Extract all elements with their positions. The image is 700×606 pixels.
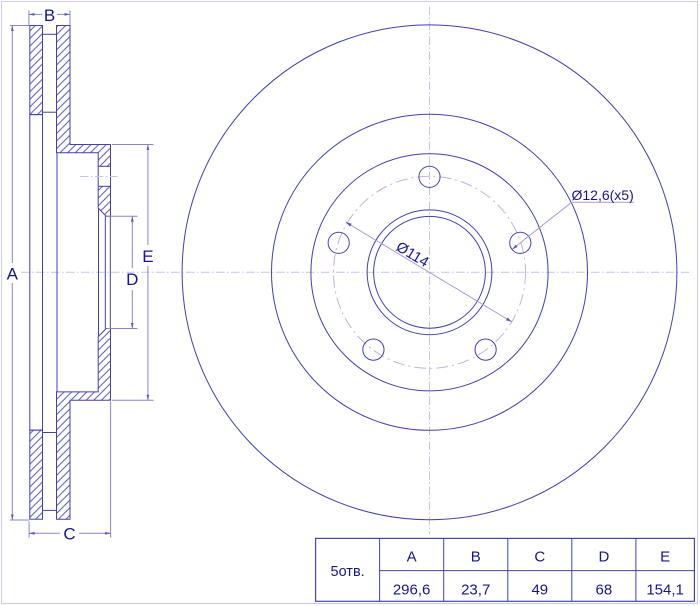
svg-text:154,1: 154,1 — [646, 582, 684, 599]
svg-text:D: D — [598, 549, 609, 566]
svg-text:5отв.: 5отв. — [331, 564, 365, 580]
svg-text:D: D — [126, 270, 138, 289]
svg-text:B: B — [471, 549, 481, 566]
svg-text:E: E — [142, 247, 153, 266]
svg-text:A: A — [407, 549, 417, 566]
svg-text:B: B — [44, 6, 55, 25]
svg-text:296,6: 296,6 — [393, 582, 431, 599]
svg-text:23,7: 23,7 — [461, 582, 490, 599]
svg-text:C: C — [63, 525, 75, 544]
svg-text:49: 49 — [531, 582, 548, 599]
svg-text:C: C — [534, 549, 545, 566]
svg-text:68: 68 — [596, 582, 613, 599]
svg-text:Ø12,6(x5): Ø12,6(x5) — [572, 187, 634, 203]
svg-text:E: E — [660, 549, 670, 566]
svg-text:A: A — [7, 265, 19, 284]
